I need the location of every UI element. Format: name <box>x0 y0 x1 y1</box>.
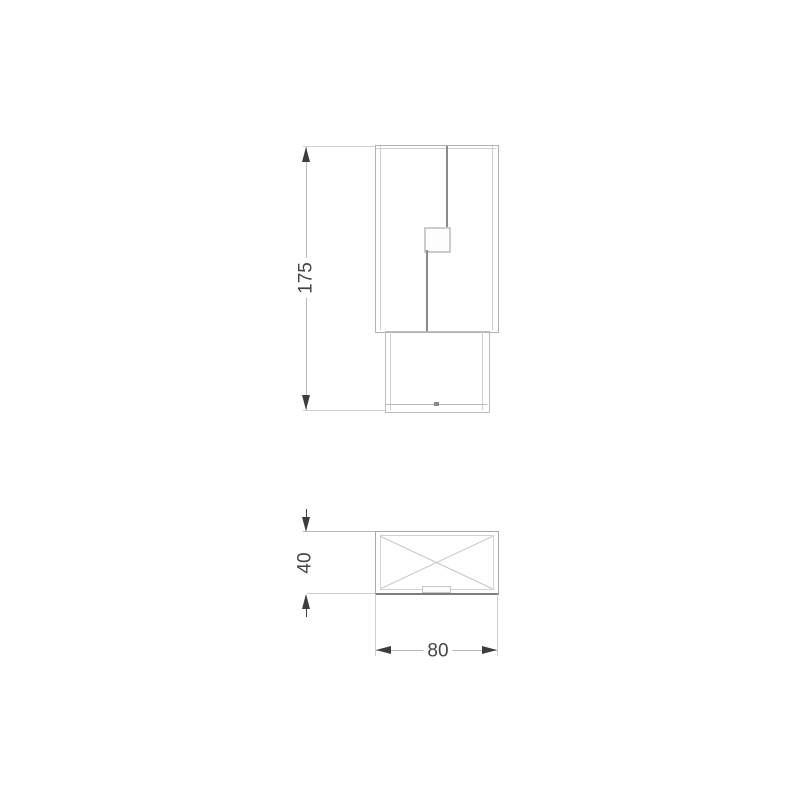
plan-bottom-notch <box>422 586 451 593</box>
door-gap-upper-line <box>446 146 448 228</box>
dim40-extension-line-top <box>303 531 375 532</box>
front-inner-right-edge <box>492 146 493 330</box>
dim175-extension-line-bottom <box>303 410 385 411</box>
drawing-canvas: 175 40 80 <box>0 0 800 800</box>
dim40-arrowhead-top-icon <box>302 517 310 532</box>
base-inner-left-edge <box>390 332 391 410</box>
dim175-arrowhead-top-icon <box>302 147 310 162</box>
dim175-arrowhead-bottom-icon <box>302 395 310 410</box>
door-gap-lower-line <box>426 250 428 331</box>
dim80-label: 80 <box>423 641 452 662</box>
dim40-extension-line-bottom <box>307 593 375 594</box>
dim80-extension-line-right <box>497 594 498 656</box>
base-center-tick <box>434 402 439 406</box>
dim80-arrowhead-right-icon <box>482 646 497 654</box>
handle-square <box>424 227 451 253</box>
dim40-arrowhead-bottom-icon <box>302 594 310 609</box>
base-rect <box>385 331 490 413</box>
front-inner-left-edge <box>380 146 381 330</box>
dim175-extension-line-top <box>303 146 375 147</box>
base-inner-right-edge <box>482 332 483 410</box>
dim175-label: 175 <box>296 258 317 298</box>
dim40-arrow-tail-bottom <box>306 608 307 617</box>
front-inner-top-edge <box>376 148 496 149</box>
dim80-arrowhead-left-icon <box>376 646 391 654</box>
dim40-label: 40 <box>295 548 316 577</box>
